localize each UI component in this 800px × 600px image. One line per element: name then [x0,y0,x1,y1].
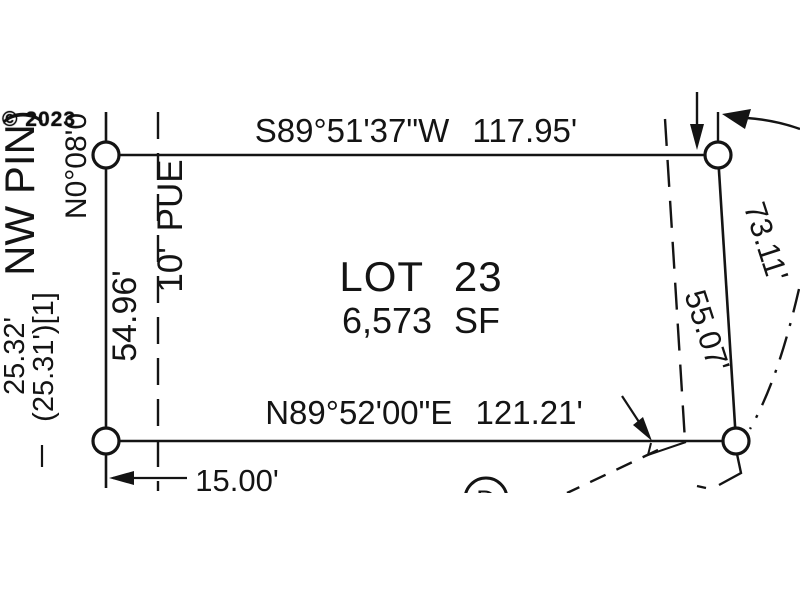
corner-leader-line [747,118,800,129]
north-line-pointer-arrowhead-icon [690,124,704,150]
lot-number-label: LOT 23 [339,253,502,300]
monument-ne-icon [705,142,731,168]
offset-dimension-label: 15.00' [195,463,279,498]
copyright-watermark: © 2023 [2,108,76,132]
east-boundary-line [718,155,736,441]
south-bearing-label: N89°52'00"E 121.21' [265,394,583,431]
se-corner-tail-dash [697,486,706,488]
diagonal-dashed-line [567,450,658,493]
deed-symbol-letter: D [476,485,496,515]
offset-dimension-arrowhead-icon [109,471,134,485]
pue-easement-label: 10' PUE [151,159,190,292]
west-side-dimension-label: 54.96' [106,270,144,362]
corner-leader-arrowhead-icon [722,109,751,129]
west-outer-record-label: (25.31')[1] [28,292,60,422]
monument-sw-icon [93,428,119,454]
east-easement-dashed-line [665,119,685,441]
nw-pin-label: NW PIN) [0,110,43,276]
west-outer-dimension-label: 25.32' [0,317,31,395]
right-of-way-curve [750,289,799,429]
south-line-leader-arrowhead-icon [633,417,652,441]
survey-plat-svg: D S89°51'37"W 117.95' N89°52'00"E 121.21… [0,0,800,600]
monument-se-icon [723,428,749,454]
plat-drawing: © 2023 [0,0,800,600]
lot-area-label: 6,573 SF [342,300,500,341]
se-corner-tail-line [719,454,741,485]
north-bearing-label: S89°51'37"W 117.95' [255,112,577,149]
east-dimension-label: 73.11' [737,198,795,286]
monument-nw-icon [93,142,119,168]
south-line-leader-shaft [622,396,641,425]
